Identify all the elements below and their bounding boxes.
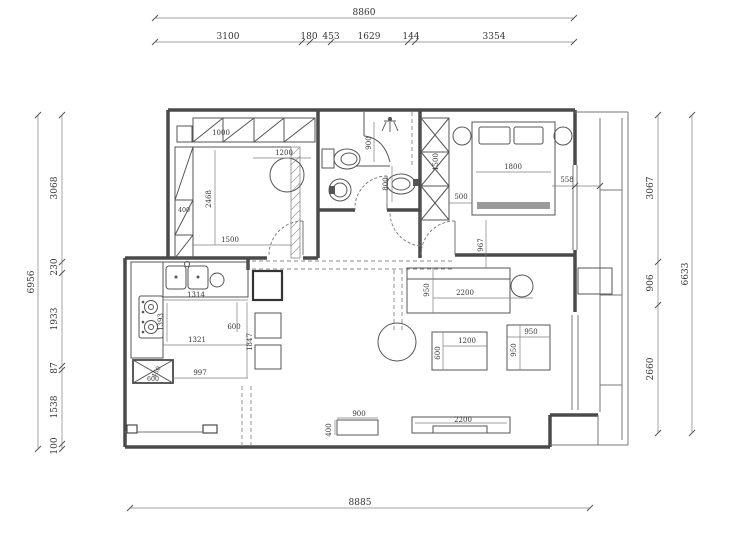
toilet-tank [322,149,334,168]
kitchen: 1314 1393 1321 997 600 1847 600 450 [131,262,254,384]
dim-label-left-overall: 6956 [27,270,37,293]
pillow [479,127,510,144]
counter-left [131,262,163,358]
washbasin-oval [387,174,415,194]
bathroom: 900 800 [322,112,419,202]
dim-label: 144 [402,32,419,42]
floor-plan-page: 8860 3100 180 453 1629 144 3354 6956 306… [0,0,740,555]
bay-cabinet [578,268,612,294]
closet-left [175,147,193,258]
dim-label-right-overall: 6633 [681,262,691,285]
living-dining: 950 2200 1200 600 950 950 900 400 2200 [253,268,612,437]
chair [253,271,282,300]
dim-label: 3068 [50,176,60,199]
side-table [511,275,533,297]
dim-label: 1200 [458,337,476,345]
dim-label: 230 [50,258,60,275]
dim-label: 1393 [157,313,165,331]
bedroom2: 1000 400 2468 1500 1200 [175,118,315,258]
dim-label: 2200 [454,416,472,424]
dim-label: 2200 [456,289,474,297]
dim-label: 3100 [217,32,240,42]
tv [433,426,487,433]
dim-right-overall: 6633 [681,112,695,436]
dim-left-segments: 3068 230 1933 87 1538 100 [50,112,65,455]
dim-label: 1314 [187,291,205,299]
dim-label: 600 [434,346,442,359]
dim-label: 1847 [246,333,254,351]
door-master-bedroom [421,221,455,255]
dim-label: 950 [510,343,518,356]
chair [255,345,281,369]
pillow [514,127,543,144]
dim-label: 900 [352,410,365,418]
basin-tap [413,179,419,186]
dim-left-overall: 6956 [27,112,41,452]
chair [255,313,281,338]
dim-label: 967 [477,238,485,251]
dim-label: 1538 [50,395,60,418]
door-hall [390,212,420,246]
dim-top-overall: 8860 [152,8,577,21]
floor-plan-drawing: 8860 3100 180 453 1629 144 3354 6956 306… [0,0,740,555]
dim-label: 500 [454,193,467,201]
door-bedroom2 [269,221,303,255]
dim-label: 906 [646,274,656,291]
shower-partition [356,112,390,166]
dim-label: 1200 [275,149,293,157]
counter-top [163,262,248,297]
dim-label: 600 [227,323,240,331]
dim-label: 950 [524,328,537,336]
basin-tap [329,186,335,194]
dim-top-segments: 3100 180 453 1629 144 3354 [152,32,577,45]
dim-label: 400 [178,207,190,214]
dim-label: 950 [423,283,431,296]
wall-column [203,425,217,433]
dim-right-segments: 3067 906 2660 [646,112,661,436]
burner [145,301,158,314]
dim-label: 558 [560,176,573,184]
dim-label: 1500 [432,153,440,171]
closet-corner [177,126,192,142]
bed-runner [477,202,550,209]
shower-head-icon [382,117,398,132]
dim-label: 997 [193,369,206,377]
dim-label: 400 [325,423,333,436]
dim-label: 453 [322,32,339,42]
dim-label: 800 [382,177,390,190]
dim-label-bottom-overall: 8885 [349,498,372,508]
hatched-partition-wall [291,147,300,258]
dim-label: 100 [50,437,60,454]
burner [145,321,158,334]
dim-label: 1629 [358,32,381,42]
exterior-interior-walls [125,110,628,447]
dim-label: 180 [300,32,317,42]
dim-label: 2468 [205,190,213,208]
dim-label: 3067 [646,176,656,199]
dim-label: 3354 [483,32,506,42]
dim-label: 87 [50,362,60,374]
dim-bottom-overall: 8885 [127,498,593,511]
counter-appliance [210,273,224,287]
dim-label: 2660 [646,357,656,380]
dim-label-top-overall: 8860 [353,8,376,18]
low-cabinet [337,420,378,435]
dim-label: 1321 [188,336,206,344]
dim-label: 1933 [50,307,60,330]
round-ottoman [378,323,416,361]
dim-label: 1800 [504,163,522,171]
nightstand [554,127,572,145]
dim-label: 1000 [212,129,230,137]
wall-column [127,425,137,433]
dim-label: 900 [365,136,373,149]
dim-label: 1500 [221,236,239,244]
nightstand [453,127,471,145]
